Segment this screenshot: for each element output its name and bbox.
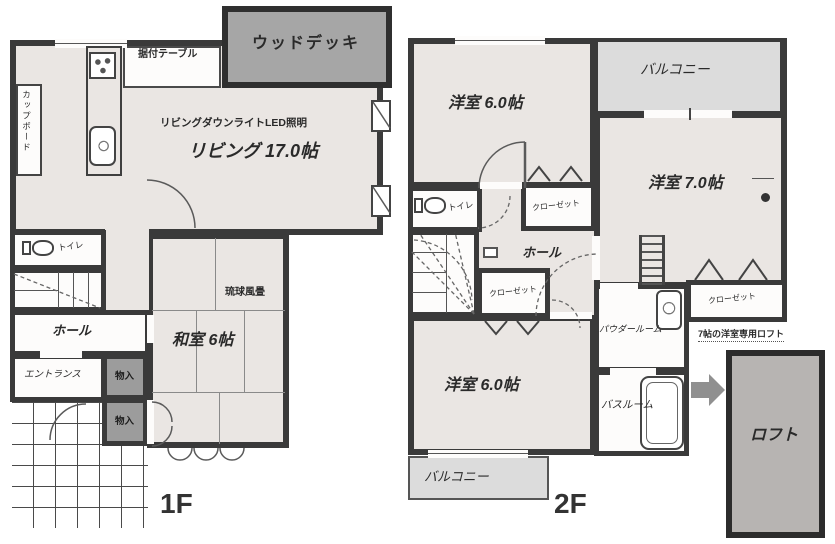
stove-icon bbox=[89, 52, 116, 79]
door-arc-washitsu-s1 bbox=[168, 448, 192, 460]
storage-lower-label: 物入 bbox=[115, 417, 134, 427]
room-2f-sw-label: 洋室 6.0帖 bbox=[444, 378, 519, 394]
fixture-dot-icon bbox=[761, 193, 770, 202]
bath-room-label: バスルーム bbox=[601, 400, 653, 411]
loft-label: ロフト bbox=[750, 428, 798, 444]
loft bbox=[726, 350, 825, 538]
hall-2f-label: ホール bbox=[522, 246, 561, 259]
staircase-2f bbox=[408, 230, 479, 317]
tatami-note-label: 琉球風畳 bbox=[225, 288, 265, 298]
room-2f-e bbox=[594, 112, 787, 288]
toilet-icon-2f bbox=[414, 198, 423, 213]
door-arc-washitsu-s3 bbox=[220, 448, 244, 460]
cupboard-label: カップボード bbox=[22, 90, 31, 153]
floor1-label: 1F bbox=[160, 490, 193, 518]
room-2f-nw-label: 洋室 6.0帖 bbox=[448, 96, 523, 112]
led-note-label: リビングダウンライトLED照明 bbox=[160, 118, 307, 129]
door-arc-washitsu-s2 bbox=[194, 448, 218, 460]
loft-note-label: 7帖の洋室専用ロフト bbox=[698, 330, 784, 342]
balcony-top-label: バルコニー bbox=[640, 62, 710, 76]
bathtub-icon bbox=[640, 376, 684, 450]
sink-icon bbox=[89, 126, 116, 166]
ladder-icon bbox=[639, 235, 665, 285]
storage-upper-label: 物入 bbox=[115, 372, 134, 382]
toilet-bowl-2f bbox=[424, 197, 446, 214]
hall-1f-label: ホール bbox=[52, 324, 91, 337]
powder-room-label: パウダールーム bbox=[599, 325, 662, 334]
window-east-2 bbox=[371, 185, 391, 217]
balcony-bottom-label: バルコニー bbox=[424, 470, 489, 483]
living-label: リビング 17.0帖 bbox=[188, 142, 318, 160]
toilet-bowl-1f bbox=[32, 240, 54, 256]
built-in-table-label: 据付テーブル bbox=[138, 50, 197, 60]
small-box-icon bbox=[483, 247, 498, 258]
washitsu-label: 和室 6帖 bbox=[172, 333, 233, 349]
room-2f-nw bbox=[408, 38, 596, 188]
entrance-label: エントランス bbox=[24, 370, 81, 380]
floor2-label: 2F bbox=[554, 490, 587, 518]
wood-deck-label: ウッドデッキ bbox=[252, 36, 360, 52]
loft-arrow-icon bbox=[691, 374, 725, 406]
floorplan-canvas: ウッドデッキ 据付テーブル カップボード リビングダウンライトLED照明 リビン… bbox=[0, 0, 835, 544]
toilet-icon-1f bbox=[22, 241, 31, 255]
window-east-1 bbox=[371, 100, 391, 132]
room-2f-e-label: 洋室 7.0帖 bbox=[648, 176, 723, 192]
